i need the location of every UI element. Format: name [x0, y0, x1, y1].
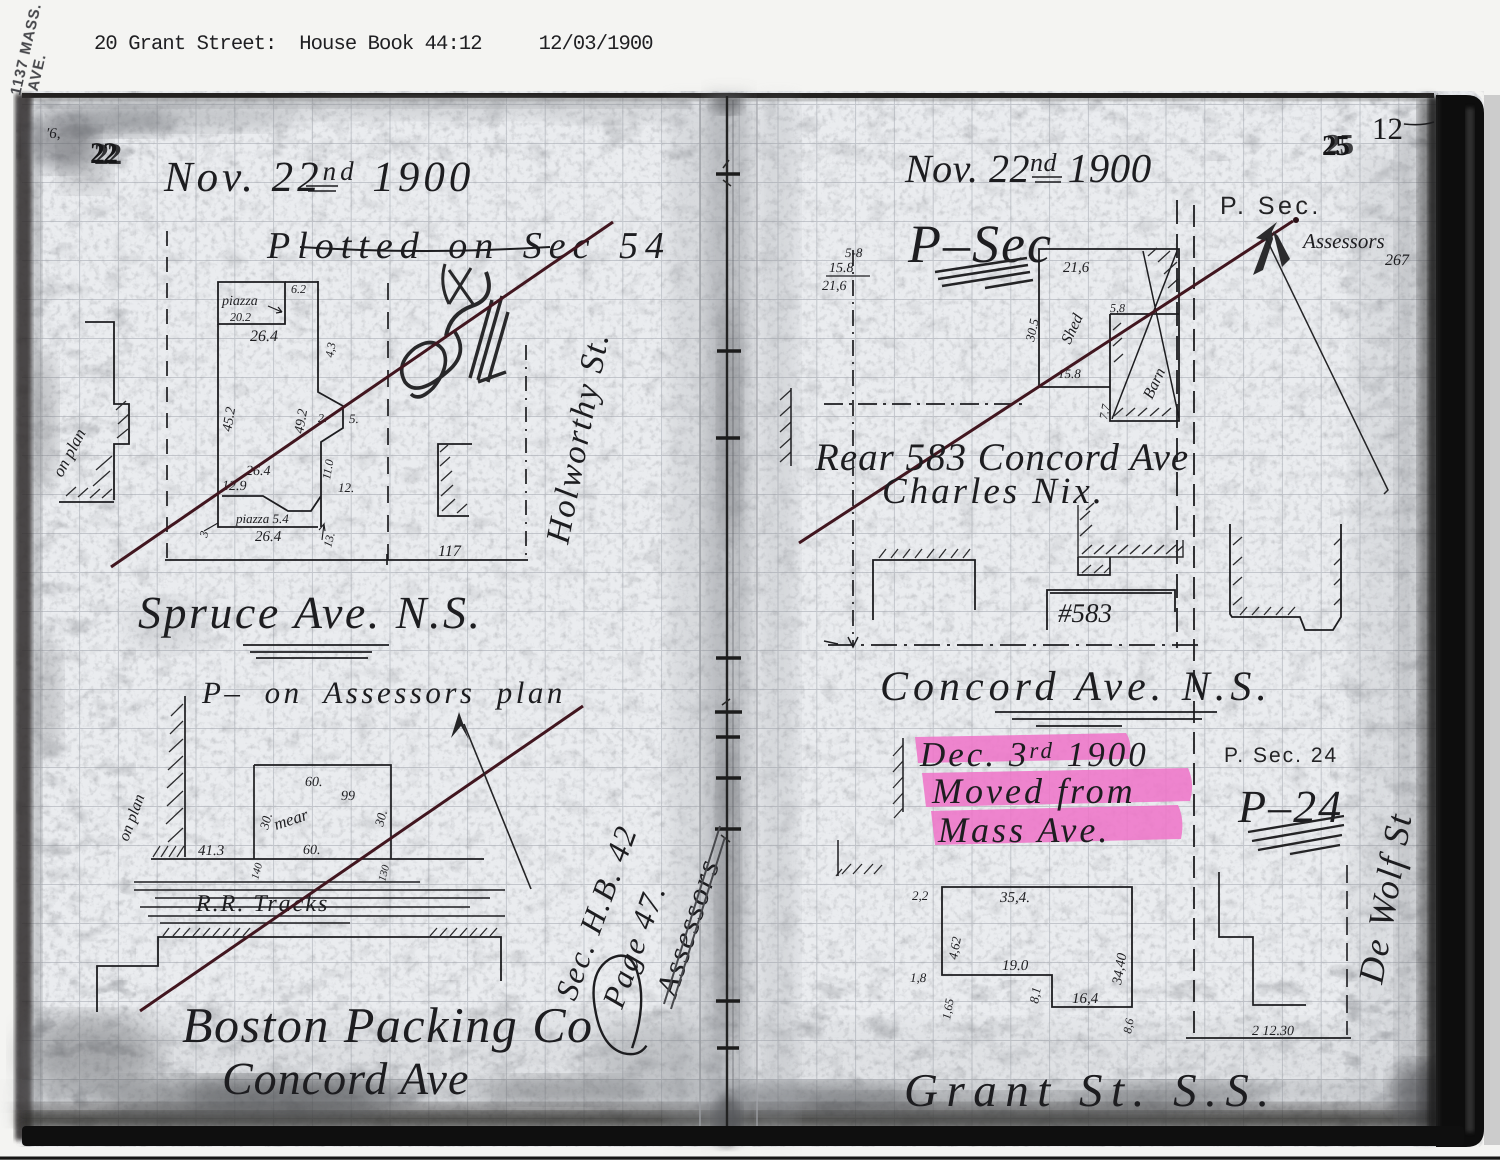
- svg-text:4,3: 4,3: [322, 341, 338, 358]
- svg-text:8,1: 8,1: [1026, 986, 1044, 1005]
- svg-text:P. Sec. 24: P. Sec. 24: [1224, 744, 1338, 767]
- svg-text:Boston Packing Co: Boston Packing Co: [182, 997, 594, 1053]
- svg-text:20.2: 20.2: [230, 310, 251, 324]
- svg-text:Plotted on Sec 54: Plotted on Sec 54: [266, 225, 671, 267]
- svg-text:21,6: 21,6: [822, 279, 847, 294]
- svg-text:20 Grant Street: House Book 4: 20 Grant Street: House Book 44:12 12/03/…: [94, 33, 653, 56]
- svg-text:21,6: 21,6: [1063, 260, 1090, 276]
- svg-text:41.3: 41.3: [198, 843, 224, 859]
- svg-text:15.8: 15.8: [829, 261, 854, 276]
- svg-text:6.2: 6.2: [291, 282, 306, 296]
- svg-text:117: 117: [438, 543, 462, 560]
- svg-text:Concord Ave: Concord Ave: [222, 1053, 469, 1104]
- svg-text:26.4: 26.4: [255, 529, 282, 545]
- svg-text:2 12.30: 2 12.30: [1252, 1024, 1294, 1039]
- svg-text:Spruce Ave. N.S.: Spruce Ave. N.S.: [138, 587, 482, 638]
- svg-text:#583: #583: [1058, 598, 1112, 628]
- svg-text:25: 25: [1326, 129, 1354, 161]
- svg-text:16,4: 16,4: [1072, 991, 1099, 1007]
- svg-text:60.: 60.: [305, 775, 323, 790]
- svg-text:Charles Nix.: Charles Nix.: [882, 471, 1105, 512]
- svg-text:Nov. 22nd 1900: Nov. 22nd 1900: [163, 154, 474, 201]
- svg-text:22: 22: [94, 138, 121, 171]
- svg-text:12: 12: [1372, 111, 1403, 146]
- svg-text:Grant St. S.S.: Grant St. S.S.: [904, 1065, 1278, 1117]
- svg-text:1,8: 1,8: [910, 970, 927, 985]
- svg-text:′︎6,: ′︎6,: [46, 126, 61, 142]
- svg-text:35,4.: 35,4.: [999, 890, 1030, 906]
- svg-text:5.: 5.: [349, 411, 359, 426]
- svg-text:Concord Ave. N.S.: Concord Ave. N.S.: [880, 664, 1272, 710]
- svg-text:267: 267: [1385, 252, 1410, 269]
- svg-text:12.: 12.: [338, 480, 354, 495]
- svg-text:Assessors: Assessors: [1301, 229, 1385, 253]
- svg-text:5-8: 5-8: [845, 245, 863, 260]
- svg-text:2,2: 2,2: [912, 888, 929, 903]
- svg-text:5,8: 5,8: [1110, 301, 1125, 315]
- svg-text:P. Sec.: P. Sec.: [1220, 192, 1322, 220]
- svg-text:19.0: 19.0: [1002, 958, 1029, 974]
- svg-text:piazza: piazza: [221, 294, 258, 309]
- svg-text:Mass Ave.: Mass Ave.: [937, 810, 1110, 850]
- svg-text:Nov. 22nd 1900: Nov. 22nd 1900: [904, 145, 1152, 191]
- svg-text:piazza 5.4: piazza 5.4: [235, 511, 289, 526]
- svg-text:Moved from: Moved from: [931, 771, 1136, 811]
- svg-text:26.4: 26.4: [250, 328, 278, 345]
- svg-text:8,6: 8,6: [1120, 1017, 1136, 1034]
- svg-text:99: 99: [341, 789, 355, 804]
- svg-text:P– on Assessors plan: P– on Assessors plan: [201, 675, 566, 710]
- svg-text:60.: 60.: [303, 843, 321, 858]
